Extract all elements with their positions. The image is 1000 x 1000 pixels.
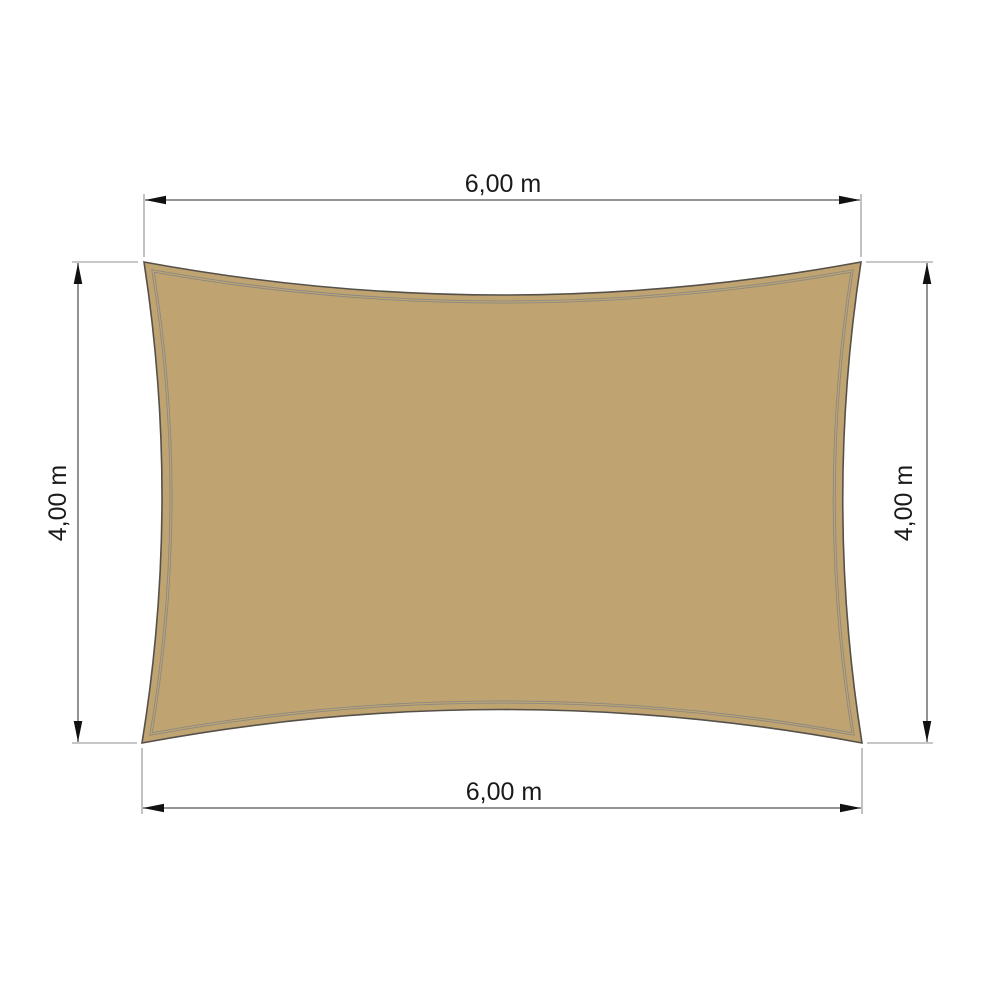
left-arrowhead-up-icon — [74, 263, 83, 284]
top-dimension: 6,00 m — [144, 170, 861, 257]
shade-sail-diagram-page: 6,00 m 6,00 m 4,00 m 4,00 m — [0, 0, 1000, 1000]
bottom-arrowhead-right-icon — [840, 804, 861, 813]
shade-sail — [142, 262, 862, 743]
top-dimension-label: 6,00 m — [465, 170, 541, 198]
bottom-dimension: 6,00 m — [142, 748, 862, 814]
top-arrowhead-right-icon — [839, 196, 860, 205]
right-dimension: 4,00 m — [866, 262, 933, 743]
bottom-dimension-label: 6,00 m — [466, 778, 542, 806]
left-dimension-label: 4,00 m — [44, 465, 72, 541]
right-dimension-label: 4,00 m — [890, 465, 918, 541]
bottom-arrowhead-left-icon — [143, 804, 164, 813]
sail-fabric-shape — [142, 262, 862, 743]
right-arrowhead-down-icon — [923, 721, 932, 742]
shade-sail-diagram: 6,00 m 6,00 m 4,00 m 4,00 m — [0, 0, 1000, 1000]
right-arrowhead-up-icon — [923, 263, 932, 284]
left-dimension: 4,00 m — [44, 262, 138, 743]
top-arrowhead-left-icon — [145, 196, 166, 205]
left-arrowhead-down-icon — [74, 721, 83, 742]
